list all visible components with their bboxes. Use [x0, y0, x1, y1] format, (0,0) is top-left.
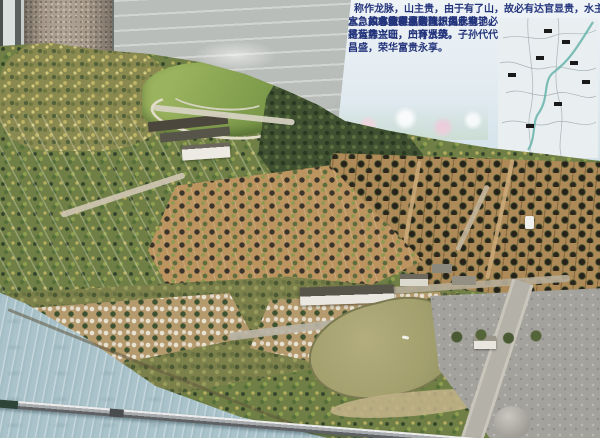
- white-vehicle: [525, 216, 534, 229]
- side-house: [400, 274, 428, 286]
- map-marker: [508, 73, 516, 77]
- shed-upper: [432, 264, 452, 273]
- sign-location-map: [498, 18, 598, 158]
- model-room-photo: 称作龙脉，山主贵，由于有了山，故必有达官显贵，水主财 宜急，才能得水聚气，由于有…: [0, 0, 600, 438]
- sign-paragraph-3: 如有缘有福者，识得此地，必将运势兴旺，产育贤英，子孙代代昌盛，荣华富贵永享。: [348, 16, 498, 55]
- map-marker: [536, 56, 544, 60]
- plaza-tree-row: [448, 326, 558, 348]
- shed-lower: [452, 276, 476, 285]
- plaza-dome: [494, 406, 530, 438]
- map-marker: [526, 124, 534, 128]
- sign-line-1: 称作龙脉，山主贵，由于有了山，故必有达官显贵，水主财: [354, 3, 600, 16]
- pen-tip: [0, 399, 18, 409]
- map-marker: [544, 29, 552, 33]
- pen-band: [109, 408, 124, 417]
- map-marker: [570, 61, 578, 65]
- map-marker: [554, 102, 562, 106]
- map-marker: [562, 40, 570, 44]
- map-river: [528, 22, 593, 150]
- map-marker: [582, 80, 590, 84]
